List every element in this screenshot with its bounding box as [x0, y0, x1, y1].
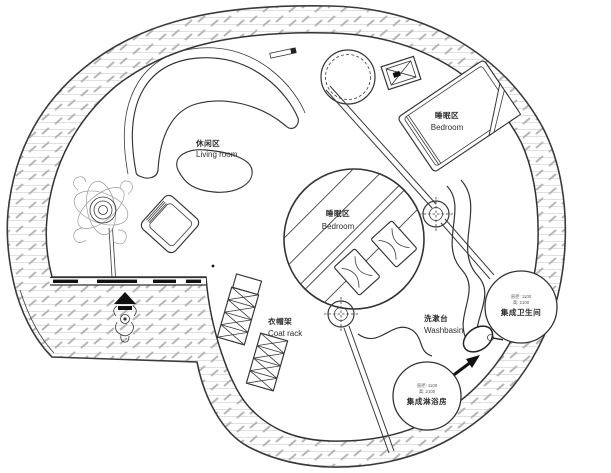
washbasin-label-zh: 洗漱台 [424, 313, 448, 323]
direction-arrow-icon [451, 355, 480, 377]
coat-rack-label-en: Coat rack [268, 329, 303, 338]
floor-plan-page: 直径: 1100 高: 2100 集成卫生间 直径: 1100 高: 2100 … [0, 0, 611, 473]
zone-divider-shower [344, 326, 394, 453]
coat-rack-unit [246, 333, 287, 391]
bedroom-main-label-en: Bedroom [431, 123, 464, 132]
living-room-label-zh: 休闲区 [195, 138, 220, 148]
shower-dim-2: 高: 2100 [419, 388, 436, 395]
coat-rack-label-zh: 衣帽架 [268, 316, 292, 326]
floor-plan-canvas: 直径: 1100 高: 2100 集成卫生间 直径: 1100 高: 2100 … [0, 0, 611, 473]
armchair [139, 193, 201, 255]
shower-pod-label: 集成淋浴房 [406, 396, 447, 406]
vent-box-icon [381, 56, 421, 89]
coat-rack-unit [217, 274, 262, 345]
shower-dim-1: 直径: 1100 [417, 382, 438, 388]
bathroom-pod-label: 集成卫生间 [500, 307, 541, 317]
plan-dot [212, 265, 215, 268]
living-room-label-en: Living room [196, 150, 238, 159]
bathroom-dim-2: 高: 2100 [513, 299, 530, 306]
bedroom-center-label-zh: 睡眠区 [326, 208, 350, 218]
bathroom-pod: 直径: 1100 高: 2100 集成卫生间 [485, 271, 557, 343]
bedroom-main-label-zh: 睡眠区 [435, 110, 459, 120]
shower-pod: 直径: 1100 高: 2100 集成淋浴房 [393, 362, 461, 430]
bedroom-center-label-en: Bedroom [322, 222, 355, 231]
skylight-circle [321, 50, 375, 104]
potted-plant [70, 177, 133, 244]
washbasin-label-en: Washbasin [424, 326, 463, 335]
wall-fixture [270, 48, 296, 58]
bathroom-dim-1: 直径: 1100 [511, 293, 532, 299]
column-marker-icon [419, 197, 453, 231]
